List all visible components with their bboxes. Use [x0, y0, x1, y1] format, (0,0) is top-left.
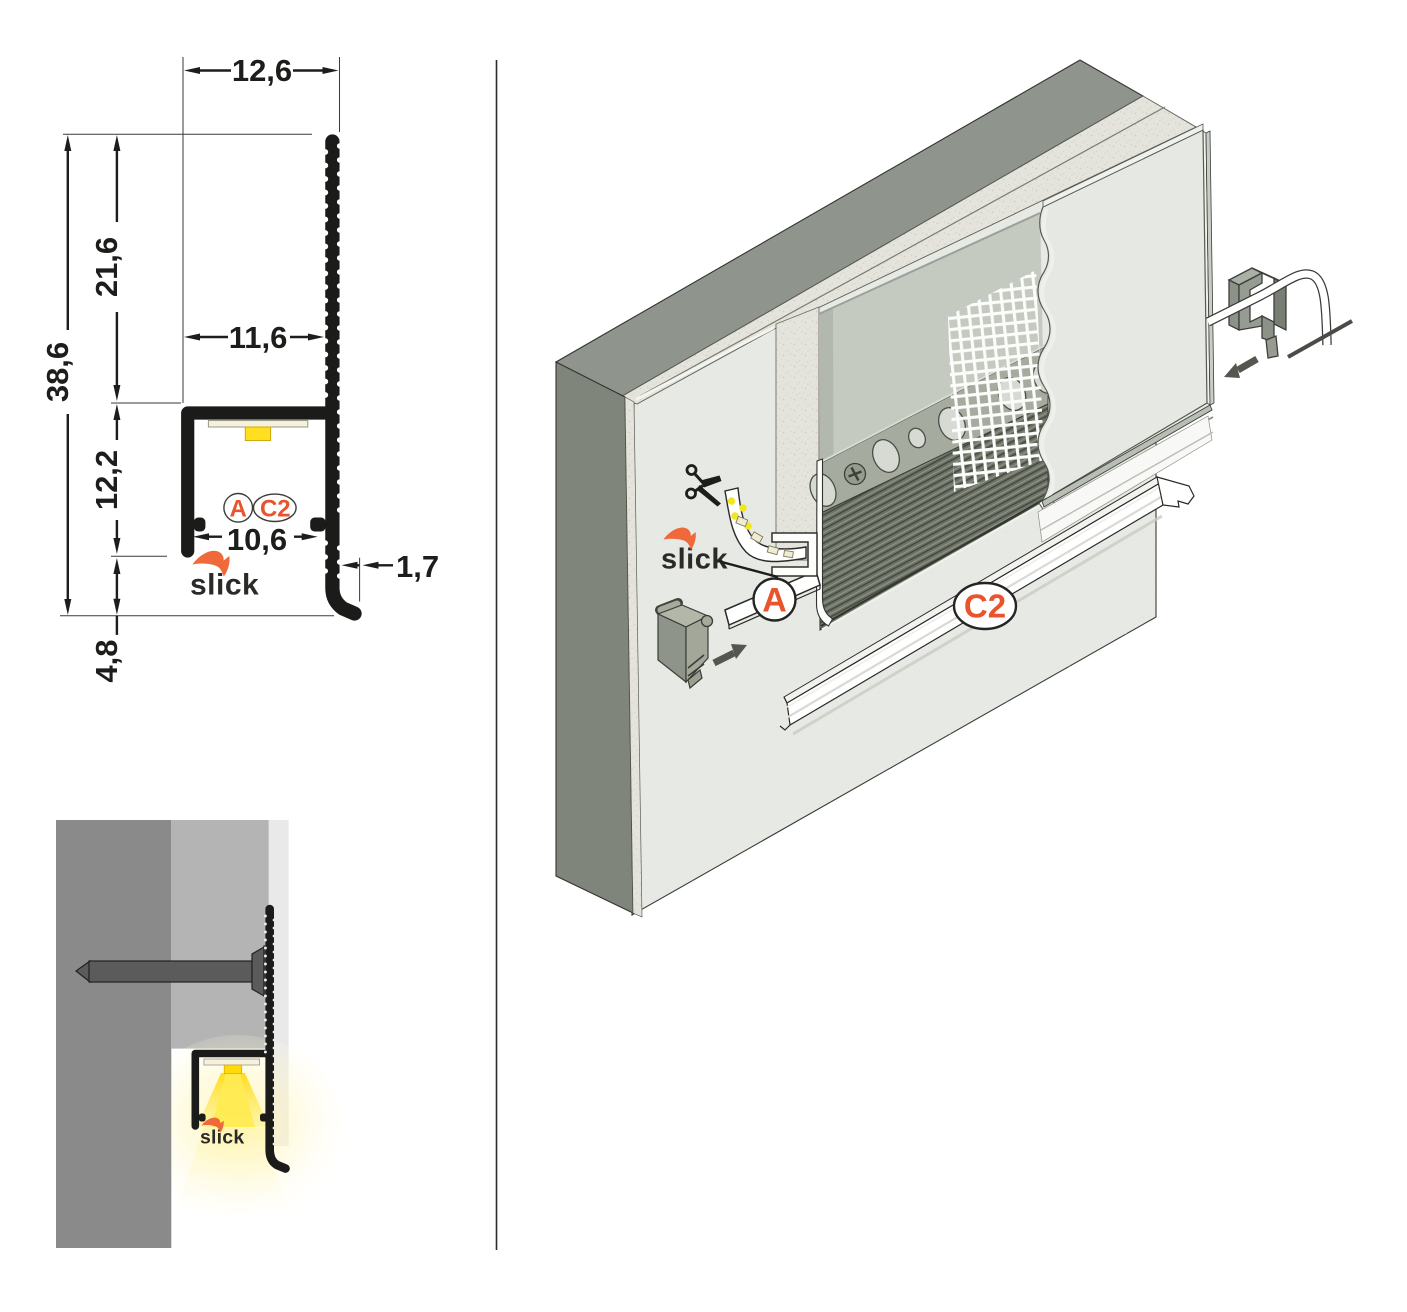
svg-text:12,6: 12,6 — [232, 53, 292, 88]
svg-text:slick: slick — [661, 544, 728, 576]
svg-text:A: A — [762, 582, 787, 620]
svg-text:4,8: 4,8 — [89, 639, 124, 682]
svg-text:A: A — [230, 496, 247, 523]
svg-text:10,6: 10,6 — [227, 522, 287, 557]
svg-text:1,7: 1,7 — [396, 549, 439, 584]
svg-text:12,2: 12,2 — [89, 450, 124, 510]
svg-text:11,6: 11,6 — [229, 320, 288, 355]
svg-text:C2: C2 — [260, 496, 291, 523]
svg-text:21,6: 21,6 — [89, 237, 124, 297]
svg-text:38,6: 38,6 — [40, 342, 75, 402]
svg-text:C2: C2 — [964, 588, 1006, 625]
svg-text:slick: slick — [200, 1127, 244, 1149]
